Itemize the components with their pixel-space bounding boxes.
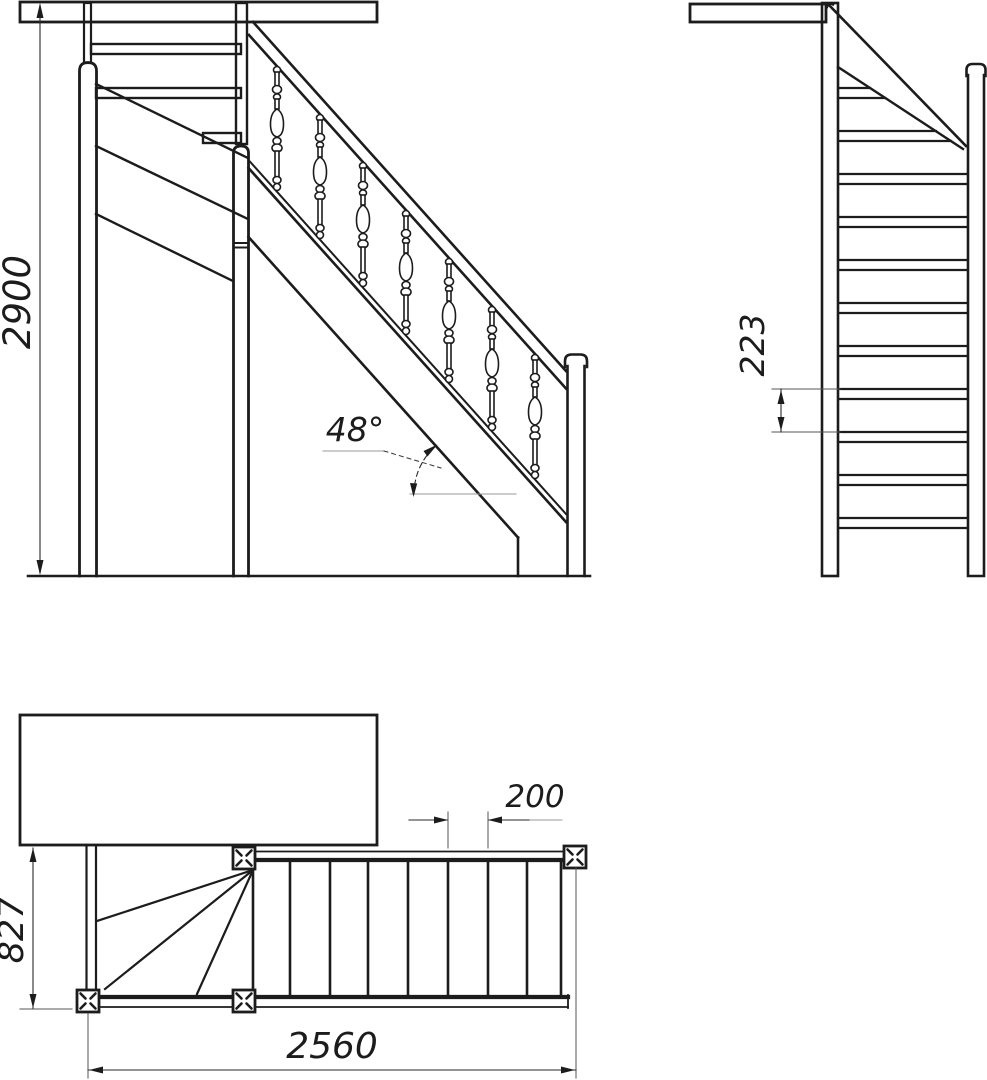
front-floor-beam [690,4,826,22]
dim-827-arrow-down [30,994,37,1008]
dim-2560-arrow-left [89,1067,103,1074]
winder-tread-line-2 [105,870,253,989]
dim-2900-arrow-down [37,560,44,575]
drawing-canvas: 2900 48° [0,0,987,1080]
front-tread-3 [839,174,966,184]
stringer-bottom-edge [249,237,519,538]
front-left-stringer-post [822,3,838,576]
angle-arc [414,446,436,494]
dimension-827: 827 [0,848,72,1009]
newel-symbol-bottom-mid [233,990,255,1012]
dim-223-arrow-up [778,390,785,404]
angle-arrow-lower [410,483,417,497]
side-elevation-view: 2900 48° [0,2,590,576]
baluster-2 [314,115,327,239]
plan-winder-treads [97,870,253,994]
winder-tread-1 [91,44,241,54]
plan-view: 200 827 2560 [0,715,586,1078]
angle-arrow-upper [424,445,438,457]
plan-treads [253,862,561,995]
baluster-3 [357,163,370,287]
winder-tread-2 [96,88,241,98]
dim-2900-arrow-up [37,3,44,18]
front-tread-2 [839,131,951,141]
angle-leader-dash [384,451,441,468]
plan-top-stringer [255,852,566,861]
front-handrail [827,4,966,149]
angle-annotation: 48° [323,410,516,497]
dimension-223: 223 [733,314,840,433]
newel-symbol-bottom-left [77,990,99,1012]
front-tread-6 [839,303,966,313]
plan-left-stringer [87,845,97,990]
stair-technical-drawing: 2900 48° [0,0,987,1080]
baluster-5 [443,259,456,383]
front-tread-8 [839,389,966,399]
bottom-newel-post [565,355,587,577]
front-tread-4 [839,217,966,227]
baluster-7 [529,355,542,479]
handrail-top-edge [253,22,566,371]
front-view: 223 [690,3,986,576]
winder-stringer-line-a [96,84,248,158]
dim-200-label: 200 [505,779,564,815]
front-right-post [967,64,986,576]
baluster-4 [400,211,413,335]
bottom-newel-shaft [568,366,585,576]
plan-bottom-stringer [99,995,568,1008]
front-treads [839,88,966,528]
angle-label: 48° [326,410,385,449]
front-tread-5 [839,260,966,270]
dim-827-label: 827 [0,897,32,964]
dim-2560-label: 2560 [286,1026,378,1067]
upper-floor-beam [20,2,377,22]
left-newel-shaft [80,63,97,577]
dim-200-arrow-left [434,817,448,824]
newel-symbol-winder [233,847,255,869]
front-right-post-shaft [968,75,984,576]
front-tread-9 [839,432,966,442]
dim-2560-arrow-right [561,1067,575,1074]
dim-223-arrow-down [778,417,785,431]
balusters [271,67,542,479]
dim-200-arrow-right [488,817,502,824]
dimension-200: 200 [409,779,565,848]
baluster-6 [486,307,499,431]
newel-symbol-right [564,846,586,868]
winder-stringer-line-c [96,214,233,281]
dim-2900-label: 2900 [0,255,39,349]
middle-newel-tenon [236,3,247,144]
left-newel-post [80,3,97,576]
dimension-2900: 2900 [0,3,44,575]
front-tread-11 [839,518,966,528]
dim-223-label: 223 [733,314,772,377]
winder-tread-line-3 [197,870,253,994]
dim-827-arrow-up [30,848,37,862]
front-right-post-cap [967,64,986,76]
winder-stringer-lines [96,84,248,281]
baluster-1 [271,67,284,191]
landing-outline [20,715,377,845]
middle-newel-shaft [234,146,249,576]
front-tread-7 [839,346,966,356]
winder-stringer-line-b [96,146,248,219]
winder-tread-line-1 [97,870,253,921]
front-tread-10 [839,475,966,485]
left-newel-tenon [84,3,91,63]
